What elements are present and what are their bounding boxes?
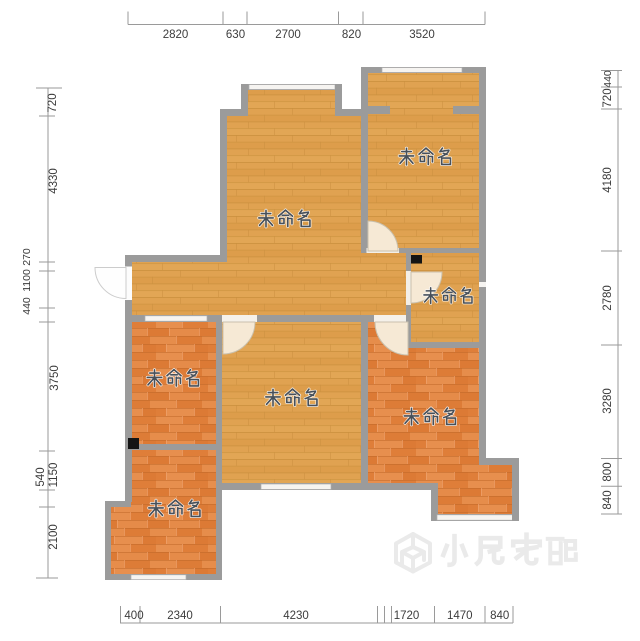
svg-text:2700: 2700 <box>275 29 301 41</box>
svg-text:1720: 1720 <box>394 610 420 622</box>
svg-text:3750: 3750 <box>49 365 61 391</box>
svg-text:4180: 4180 <box>602 167 614 193</box>
svg-text:2820: 2820 <box>163 29 189 41</box>
svg-text:4230: 4230 <box>283 610 309 622</box>
svg-text:440: 440 <box>602 70 614 88</box>
svg-text:2780: 2780 <box>602 285 614 311</box>
svg-text:720: 720 <box>602 88 614 107</box>
svg-text:4330: 4330 <box>48 168 60 194</box>
svg-text:720: 720 <box>47 93 59 112</box>
svg-text:2100: 2100 <box>48 524 60 550</box>
svg-text:840: 840 <box>490 610 509 622</box>
svg-text:1470: 1470 <box>447 610 473 622</box>
svg-text:400: 400 <box>124 610 143 622</box>
svg-text:3520: 3520 <box>409 29 435 41</box>
svg-text:630: 630 <box>226 29 245 41</box>
svg-text:270: 270 <box>21 248 33 266</box>
svg-text:800: 800 <box>602 462 614 481</box>
svg-text:540: 540 <box>35 467 47 486</box>
svg-text:840: 840 <box>602 490 614 509</box>
svg-text:1150: 1150 <box>48 463 60 488</box>
svg-text:820: 820 <box>342 29 361 41</box>
svg-text:1100: 1100 <box>21 269 33 292</box>
svg-text:2340: 2340 <box>167 610 193 622</box>
svg-text:440: 440 <box>21 297 33 315</box>
svg-text:3280: 3280 <box>602 388 614 414</box>
